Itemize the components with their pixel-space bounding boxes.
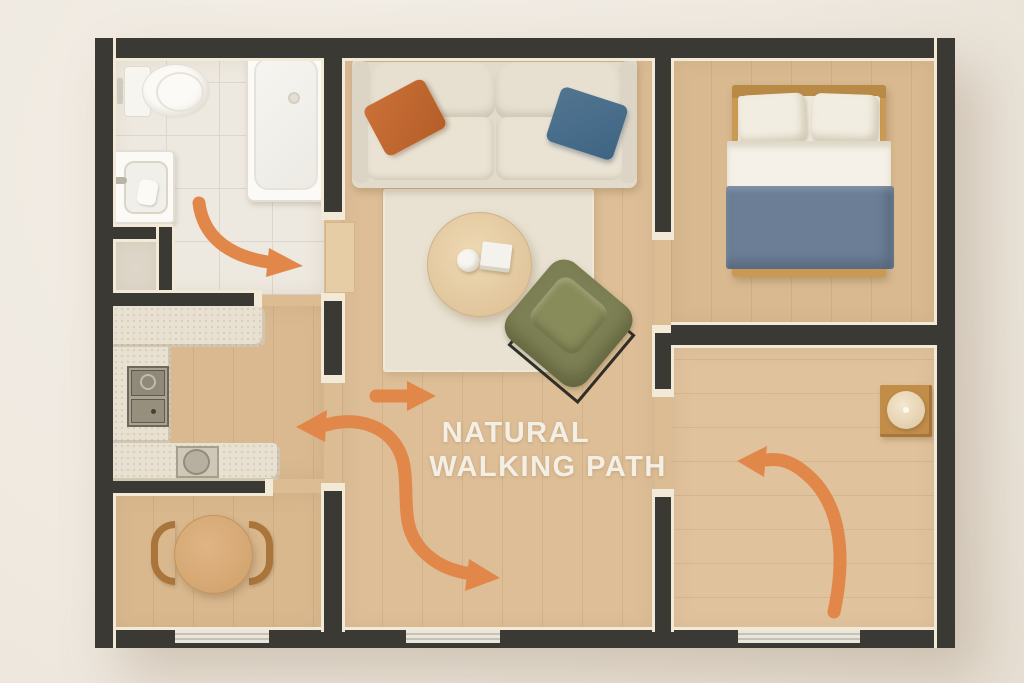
path-label-line2: WALKING PATH — [398, 451, 698, 484]
arrowhead — [407, 381, 436, 411]
path-label-line1: NATURAL — [400, 417, 632, 450]
walking-path-arrows-overlay — [0, 0, 1024, 683]
arrowhead — [296, 410, 327, 442]
arrowhead — [737, 446, 767, 477]
arrowhead — [266, 248, 303, 277]
arrowhead — [465, 559, 500, 591]
second-room-curve-arrow — [767, 460, 840, 613]
bathroom-exit-arrow — [199, 203, 268, 262]
